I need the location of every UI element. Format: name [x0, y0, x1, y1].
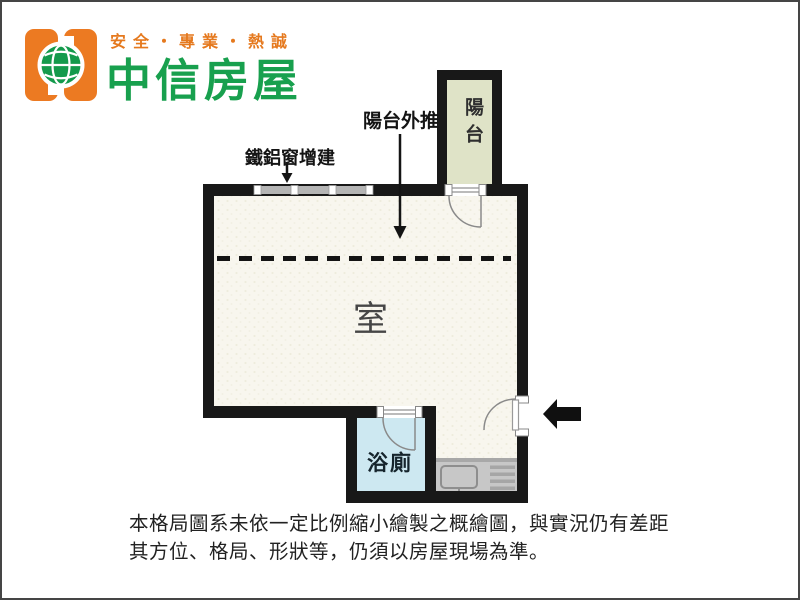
- entrance-door-leaf: [513, 400, 519, 430]
- window: [254, 186, 373, 195]
- room-label-balcony: 陽台: [459, 97, 486, 151]
- floorplan-page: 安全・專業・熱誠 中信房屋: [0, 0, 800, 600]
- door-jamb: [377, 407, 384, 418]
- door-jamb: [416, 407, 423, 418]
- wall-balcony-right: [492, 70, 502, 196]
- floorplan-drawing: [0, 0, 800, 600]
- counter-edge: [436, 458, 517, 462]
- disclaimer-text: 本格局圖系未依一定比例縮小繪製之概繪圖，與實況仍有差距 其方位、格局、形狀等，仍…: [129, 511, 669, 566]
- wall-bathroom-right: [425, 406, 436, 503]
- kitchen-counter: [436, 458, 517, 494]
- wall-bottom-left: [203, 406, 363, 418]
- wall-balcony-left: [437, 70, 447, 196]
- disclaimer-line-1: 本格局圖系未依一定比例縮小繪製之概繪圖，與實況仍有差距: [129, 511, 669, 539]
- wall-right: [517, 184, 528, 503]
- door-jamb: [479, 185, 486, 196]
- wall-left: [203, 184, 214, 418]
- room-label-bathroom: 浴廁: [367, 447, 413, 477]
- door-jamb: [445, 185, 452, 196]
- label-window-addition: 鐵鋁窗增建: [245, 144, 335, 170]
- label-balcony-pushout: 陽台外推: [363, 106, 439, 133]
- disclaimer-line-2: 其方位、格局、形狀等，仍須以房屋現場為準。: [129, 539, 669, 567]
- window-band: [254, 186, 373, 194]
- wall-bottom: [346, 491, 528, 503]
- entrance-arrow-icon: [543, 399, 581, 429]
- room-label-main: 室: [353, 291, 388, 342]
- wall-bathroom-left: [346, 406, 357, 503]
